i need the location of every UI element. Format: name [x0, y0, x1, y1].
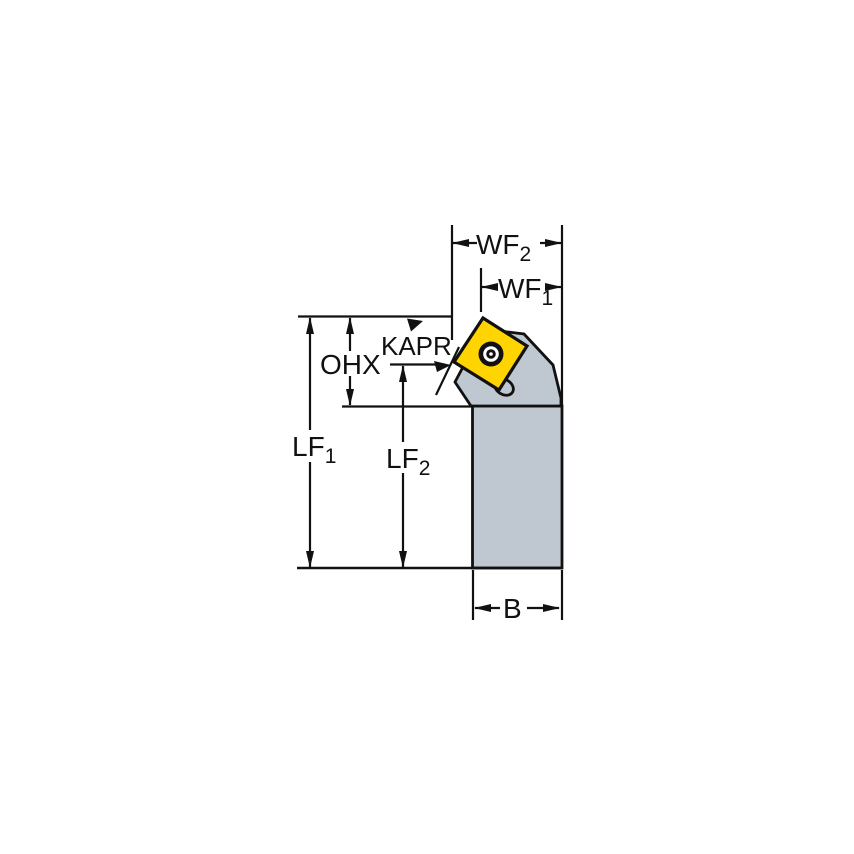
- insert-screw-icon: [479, 342, 504, 367]
- lf1-label-sub: 1: [325, 445, 337, 468]
- lf2-label-main: LF: [386, 443, 419, 474]
- screw-center-dot: [489, 352, 493, 356]
- kapr-label: KAPR: [381, 331, 452, 361]
- wf2-label-main: WF: [476, 229, 520, 260]
- tool-holder-drawing: WF2 WF1 KAPR OHX LF1 LF2: [0, 0, 854, 854]
- diagram-page: WF2 WF1 KAPR OHX LF1 LF2: [0, 0, 854, 854]
- wf2-label-sub: 2: [520, 243, 532, 266]
- b-label: B: [503, 593, 522, 624]
- wf1-label-sub: 1: [542, 287, 554, 310]
- lf2-label-sub: 2: [419, 457, 431, 480]
- lf1-label-main: LF: [292, 431, 325, 462]
- ohx-label: OHX: [320, 349, 381, 380]
- wf1-label-main: WF: [498, 273, 542, 304]
- drawing-background: [0, 0, 854, 854]
- tool-shank: [473, 406, 563, 568]
